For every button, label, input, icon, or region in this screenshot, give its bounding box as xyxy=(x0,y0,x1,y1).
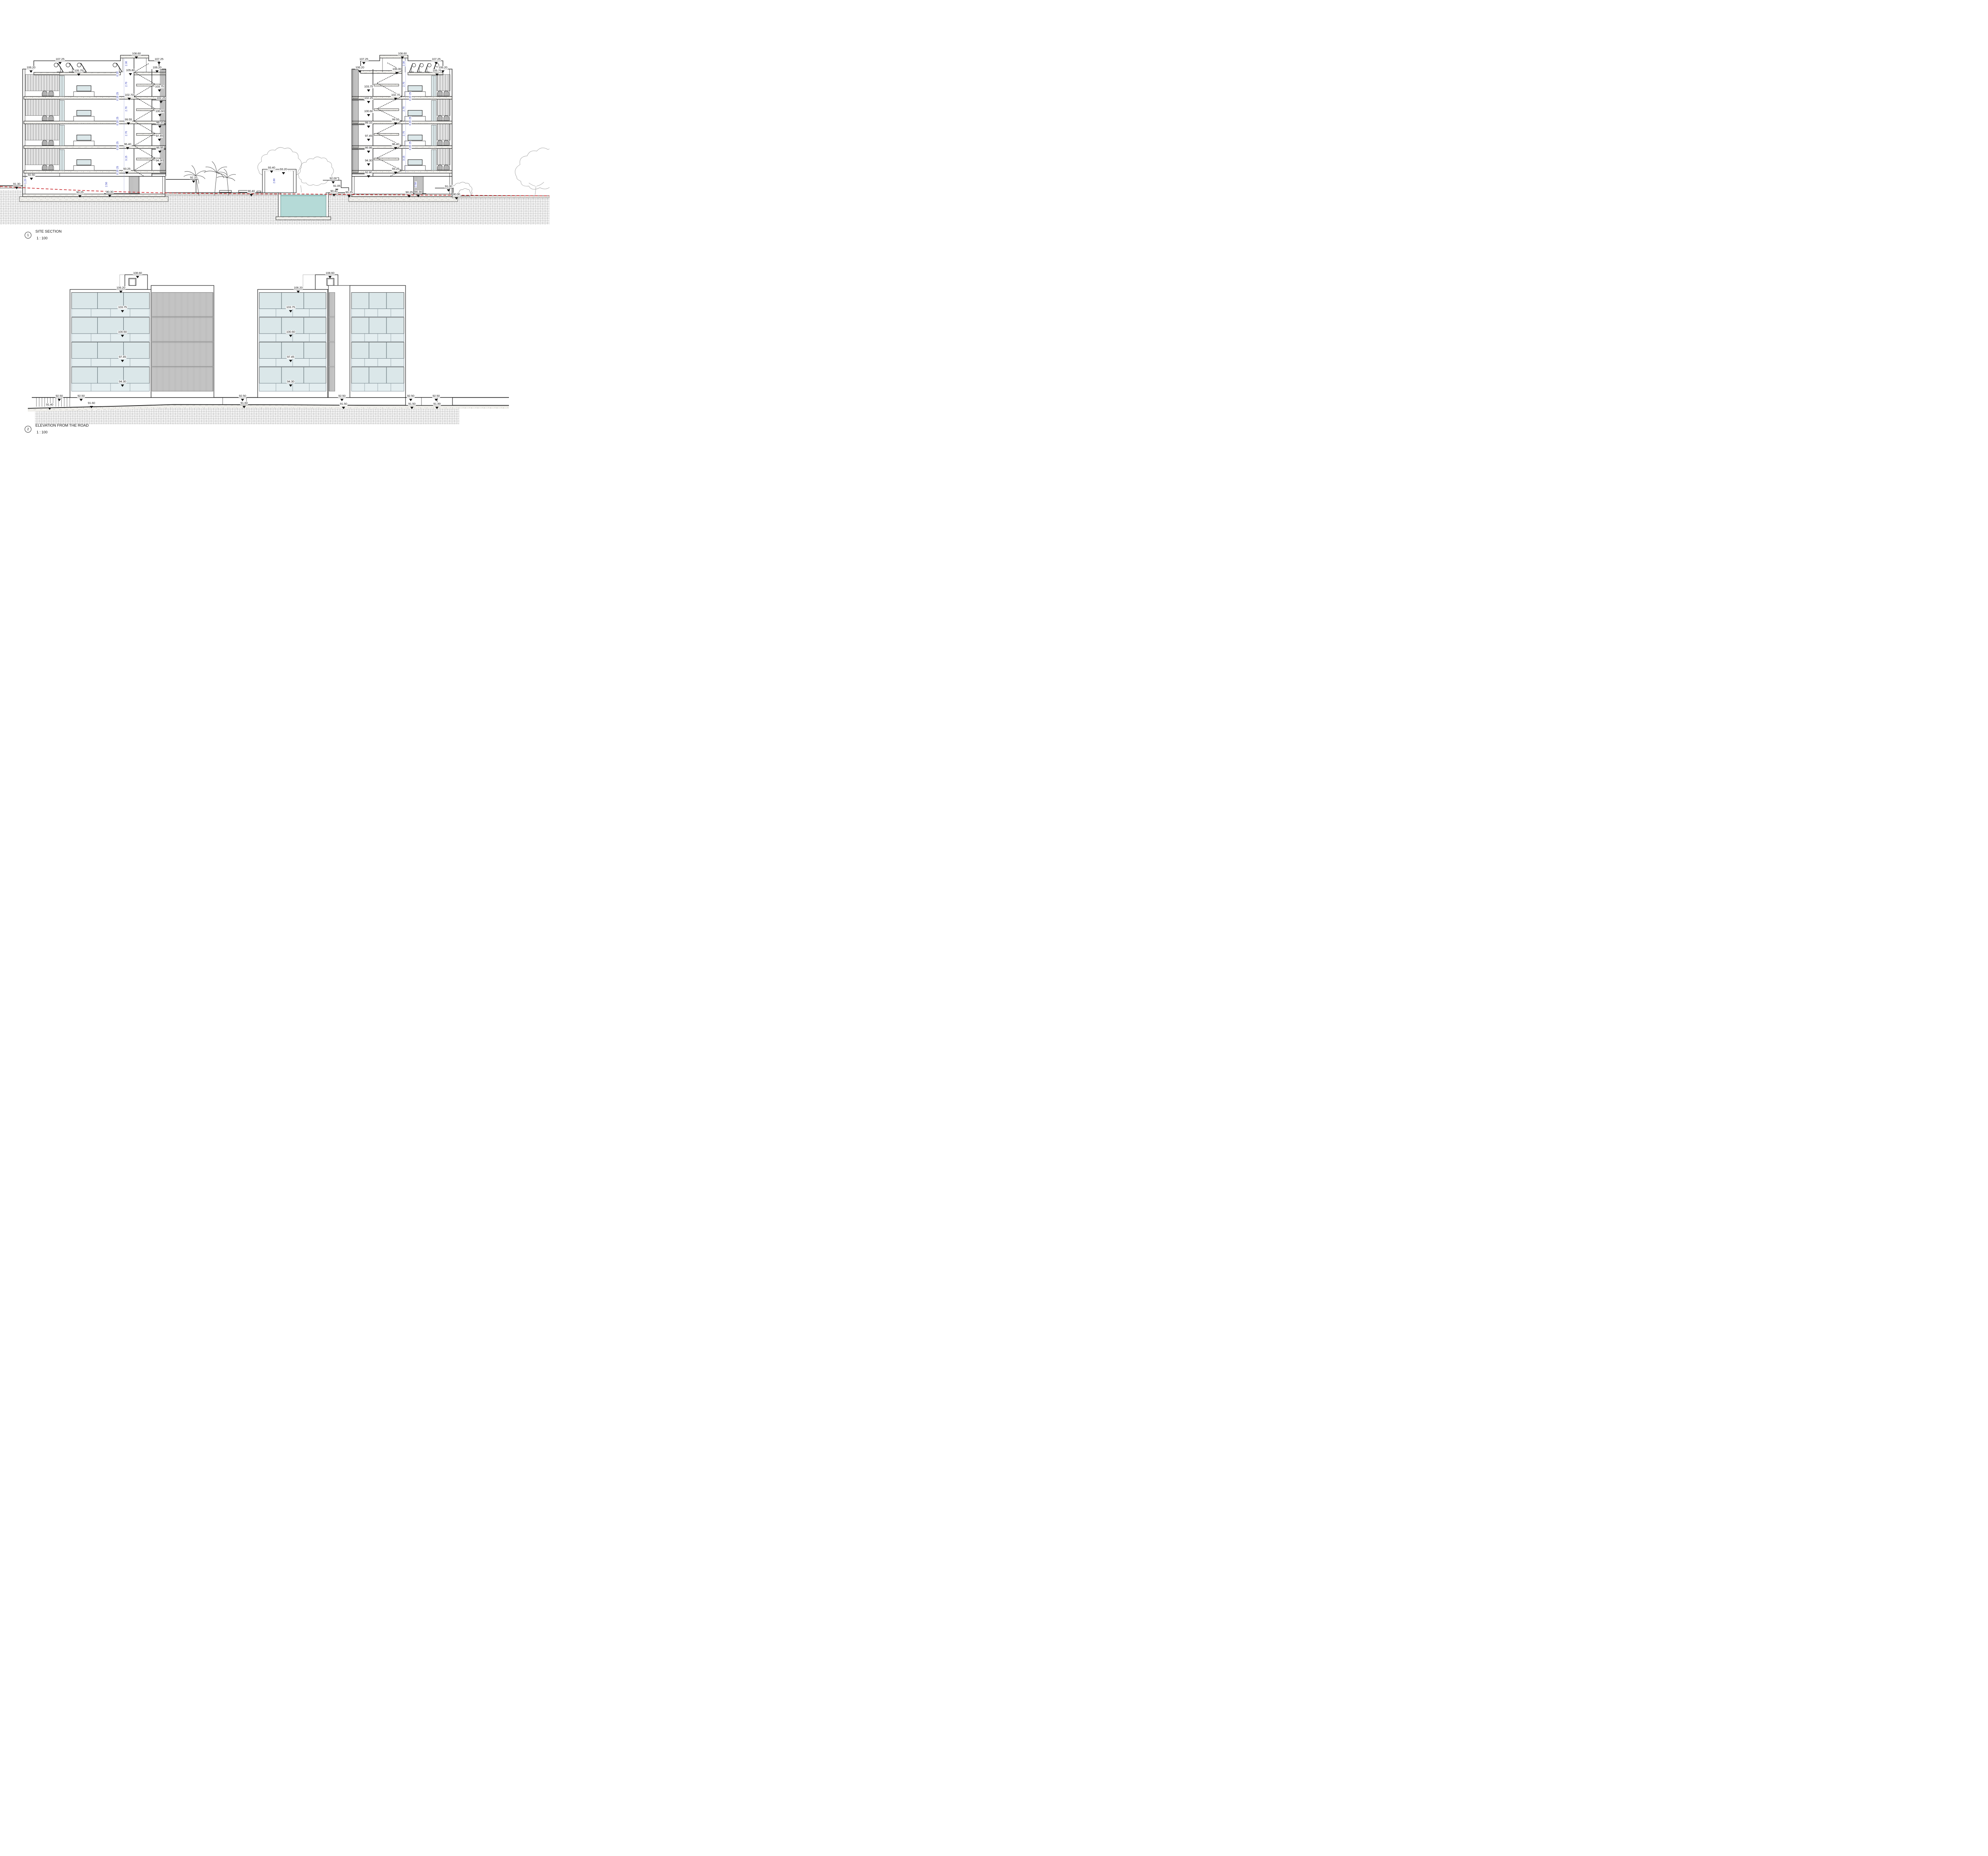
view-title-label: ELEVATION FROM THE ROAD xyxy=(35,423,89,428)
left-building-section xyxy=(0,55,166,197)
drawing-canvas: 108.60107.25106.20105.75105.80102.7099.5… xyxy=(0,0,549,464)
view-number-badge: 2 xyxy=(25,426,31,433)
view-title-label: SITE SECTION xyxy=(35,229,62,234)
view-number-badge: 1 xyxy=(25,232,31,239)
right-building-section xyxy=(352,55,453,197)
elevation-ground xyxy=(28,398,509,424)
left-building-elevation xyxy=(70,275,214,398)
view-scale-label: 1 : 100 xyxy=(37,430,48,434)
right-building-elevation xyxy=(258,275,406,398)
architectural-drawing xyxy=(0,0,549,464)
view-scale-label: 1 : 100 xyxy=(37,236,48,240)
